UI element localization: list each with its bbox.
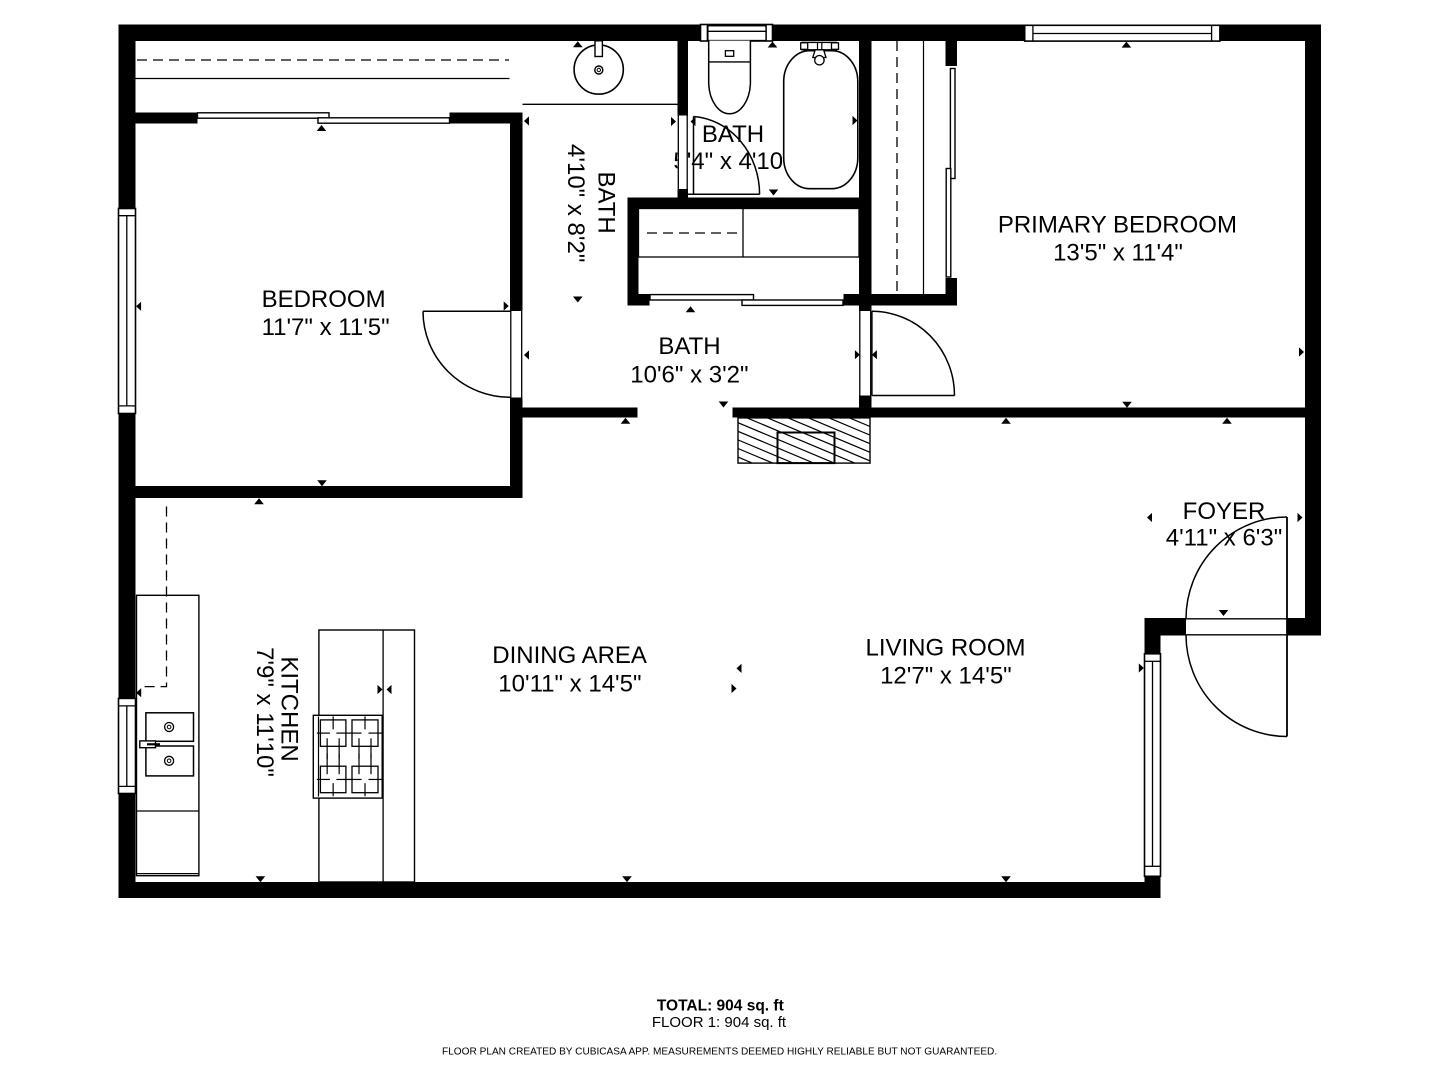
svg-text:4'10" x 8'2": 4'10" x 8'2" bbox=[562, 144, 589, 262]
svg-text:BEDROOM: BEDROOM bbox=[262, 286, 386, 313]
svg-text:DINING AREA: DINING AREA bbox=[492, 642, 647, 669]
svg-text:BATH: BATH bbox=[592, 171, 619, 233]
svg-text:7'9" x 11'10": 7'9" x 11'10" bbox=[251, 647, 278, 777]
svg-text:4'11" x 6'3": 4'11" x 6'3" bbox=[1166, 525, 1283, 552]
svg-text:10'6" x 3'2": 10'6" x 3'2" bbox=[630, 362, 748, 389]
svg-text:FLOOR PLAN CREATED BY CUBICASA: FLOOR PLAN CREATED BY CUBICASA APP. MEAS… bbox=[442, 1047, 997, 1058]
svg-text:PRIMARY BEDROOM: PRIMARY BEDROOM bbox=[998, 212, 1237, 239]
svg-text:12'7" x 14'5": 12'7" x 14'5" bbox=[880, 662, 1012, 689]
svg-text:13'5" x 11'4": 13'5" x 11'4" bbox=[1053, 240, 1183, 267]
svg-text:10'11" x 14'5": 10'11" x 14'5" bbox=[498, 671, 641, 698]
svg-text:FOYER: FOYER bbox=[1183, 498, 1266, 525]
svg-text:BATH: BATH bbox=[702, 121, 764, 148]
svg-text:LIVING ROOM: LIVING ROOM bbox=[865, 635, 1025, 662]
svg-text:TOTAL: 904 sq. ft: TOTAL: 904 sq. ft bbox=[657, 998, 784, 1015]
svg-text:FLOOR 1: 904 sq. ft: FLOOR 1: 904 sq. ft bbox=[652, 1014, 787, 1031]
svg-text:KITCHEN: KITCHEN bbox=[275, 656, 302, 761]
svg-text:BATH: BATH bbox=[658, 333, 720, 360]
svg-text:5'4" x 4'10": 5'4" x 4'10" bbox=[673, 148, 791, 175]
svg-text:11'7" x 11'5": 11'7" x 11'5" bbox=[262, 314, 390, 341]
